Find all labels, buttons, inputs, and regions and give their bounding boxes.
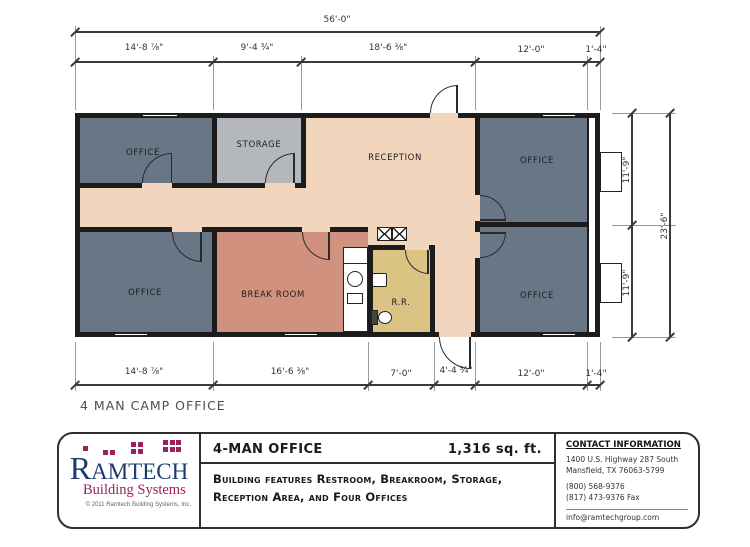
window-bay-upper (600, 152, 622, 192)
plan-title: 4 MAN CAMP OFFICE (80, 398, 226, 413)
contact-address-1: 1400 U.S. Highway 287 South (566, 455, 688, 466)
window (143, 114, 177, 117)
window-bay-lower (600, 263, 622, 303)
window (543, 333, 575, 336)
dim-top-3: 18'-6 ⅜" (369, 43, 408, 53)
room-label-reception: RECEPTION (368, 153, 422, 163)
reception-entry-opening (430, 113, 458, 118)
dim-top-4: 12'-0" (517, 45, 544, 55)
dim-bottom-3: 7'-0" (390, 369, 411, 379)
room-label-break-room: BREAK ROOM (241, 290, 305, 300)
building-outline: OFFICE STORAGE RECEPTION OFFICE OFFICE B… (75, 113, 600, 337)
model-title: 4-MAN OFFICE (213, 442, 323, 457)
logo-copyright: © 2011 Ramtech Building Systems, Inc. (86, 502, 191, 508)
dim-bottom-4: 4'-4 ¾" (440, 366, 473, 376)
contact-heading: CONTACT INFORMATION (566, 440, 688, 450)
dim-line-overall-top (75, 31, 600, 32)
window (285, 333, 317, 336)
room-label-office-top-right: OFFICE (520, 156, 554, 166)
logo-tagline: Building Systems (83, 482, 186, 499)
room-label-restroom: R.R. (391, 298, 410, 308)
dim-line-top-segments (75, 61, 600, 62)
contact-info: CONTACT INFORMATION 1400 U.S. Highway 28… (556, 434, 698, 527)
info-panel: RAMTECH Building Systems © 2011 Ramtech … (57, 432, 700, 529)
contact-email: info@ramtechgroup.com (566, 513, 688, 524)
dim-top-5: 1'-4" (585, 45, 606, 55)
room-label-storage: STORAGE (237, 140, 282, 150)
floor-plan-page: OFFICE STORAGE RECEPTION OFFICE OFFICE B… (0, 0, 750, 547)
dim-line-bottom-segments (75, 384, 600, 385)
dim-bottom-5: 12'-0" (517, 369, 544, 379)
model-area: 1,316 sq. ft. (448, 442, 542, 457)
kitchen-sink (347, 271, 363, 287)
window (543, 114, 575, 117)
room-label-office-bottom-left: OFFICE (128, 288, 162, 298)
model-header: 4-MAN OFFICE 1,316 sq. ft. (201, 434, 554, 464)
model-info: 4-MAN OFFICE 1,316 sq. ft. Building feat… (199, 434, 556, 527)
dim-bottom-1: 14'-8 ⅞" (125, 367, 164, 377)
dim-right-upper: 11'-9" (622, 156, 632, 183)
dim-right-lower: 11'-9" (622, 269, 632, 296)
dim-top-1: 14'-8 ⅞" (125, 43, 164, 53)
dim-right-overall: 23'-6" (660, 212, 670, 239)
model-description: Building features Restroom, Breakroom, S… (201, 464, 554, 514)
ramtech-logo: RAMTECH Building Systems © 2011 Ramtech … (59, 434, 199, 527)
dim-bottom-6: 1'-4" (585, 369, 606, 379)
dim-top-2: 9'-4 ¾" (241, 43, 274, 53)
dim-overall-width: 56'-0" (323, 15, 350, 25)
room-label-office-bottom-right: OFFICE (520, 291, 554, 301)
dim-bottom-2: 16'-6 ⅜" (271, 367, 310, 377)
logo-wordmark: RAMTECH (59, 452, 199, 484)
contact-phone: (800) 568-9376 (566, 482, 688, 493)
contact-address-2: Mansfield, TX 76063-5799 (566, 466, 688, 477)
window (115, 333, 147, 336)
contact-fax: (817) 473-9376 Fax (566, 493, 688, 504)
room-label-office-top-left: OFFICE (126, 148, 160, 158)
